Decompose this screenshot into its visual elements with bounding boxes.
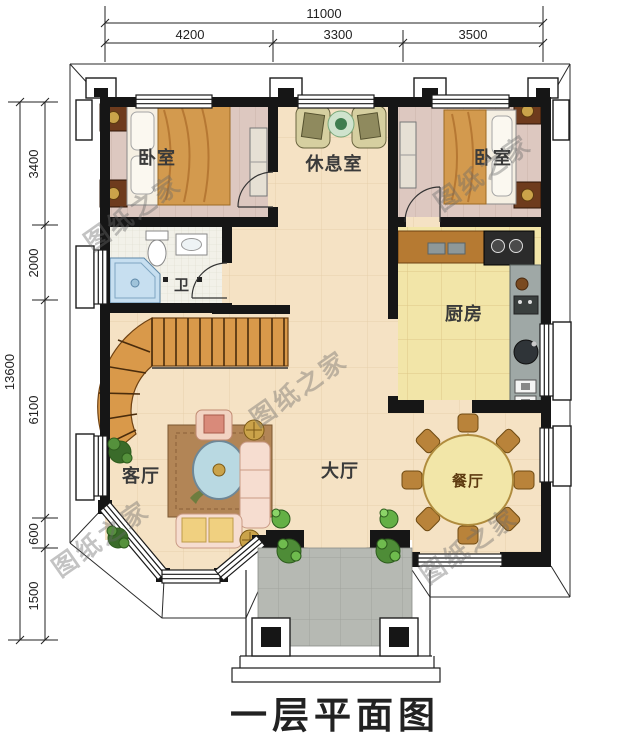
page-title: 一层平面图 (230, 695, 440, 736)
floor-plan-page: 11000 4200 3300 3500 13600 3400 2000 610… (0, 0, 640, 753)
window (94, 436, 107, 496)
eave-box (553, 322, 571, 400)
plant-icon (277, 539, 301, 563)
dim-segment: 1500 (26, 582, 41, 611)
eave-box (553, 100, 569, 140)
label-lounge: 休息室 (305, 153, 363, 174)
window (136, 95, 212, 108)
dim-segment: 3400 (26, 150, 41, 179)
dim-total-height: 13600 (2, 354, 17, 390)
porch-column (261, 627, 281, 647)
eave-box (553, 426, 571, 486)
window (540, 324, 553, 396)
window (162, 570, 220, 583)
window (94, 250, 107, 304)
dining-chair (402, 471, 422, 489)
dim-segment: 3300 (324, 27, 353, 42)
label-bathroom: 卫 (174, 277, 190, 294)
label-dining: 餐厅 (452, 472, 484, 490)
dining-chair (458, 414, 478, 432)
dim-total-width: 11000 (306, 6, 341, 21)
plant-icon (376, 539, 400, 563)
window (432, 95, 509, 108)
sofa-right (240, 442, 270, 528)
dimension-top-labels: 11000 4200 3300 3500 (176, 6, 488, 42)
floor-plan-svg: 11000 4200 3300 3500 13600 3400 2000 610… (0, 0, 640, 753)
window (540, 428, 553, 482)
porch-column (389, 627, 409, 647)
eave-box (76, 100, 92, 140)
dim-segment: 2000 (26, 249, 41, 278)
dim-segment: 6100 (26, 396, 41, 425)
eave-box (76, 246, 94, 308)
dim-segment: 3500 (459, 27, 488, 42)
window (298, 95, 374, 108)
dim-segment: 4200 (176, 27, 205, 42)
dim-segment: 600 (26, 523, 41, 545)
label-kitchen: 厨房 (445, 303, 483, 324)
toilet-icon (146, 231, 168, 240)
dimension-left-labels: 13600 3400 2000 6100 600 1500 (2, 150, 41, 611)
eave-box (76, 434, 94, 500)
label-living-room: 客厅 (122, 465, 160, 486)
porch (232, 548, 440, 682)
dining-chair (514, 471, 534, 489)
label-hall: 大厅 (321, 460, 359, 481)
label-bedroom-left: 卧室 (138, 147, 176, 168)
